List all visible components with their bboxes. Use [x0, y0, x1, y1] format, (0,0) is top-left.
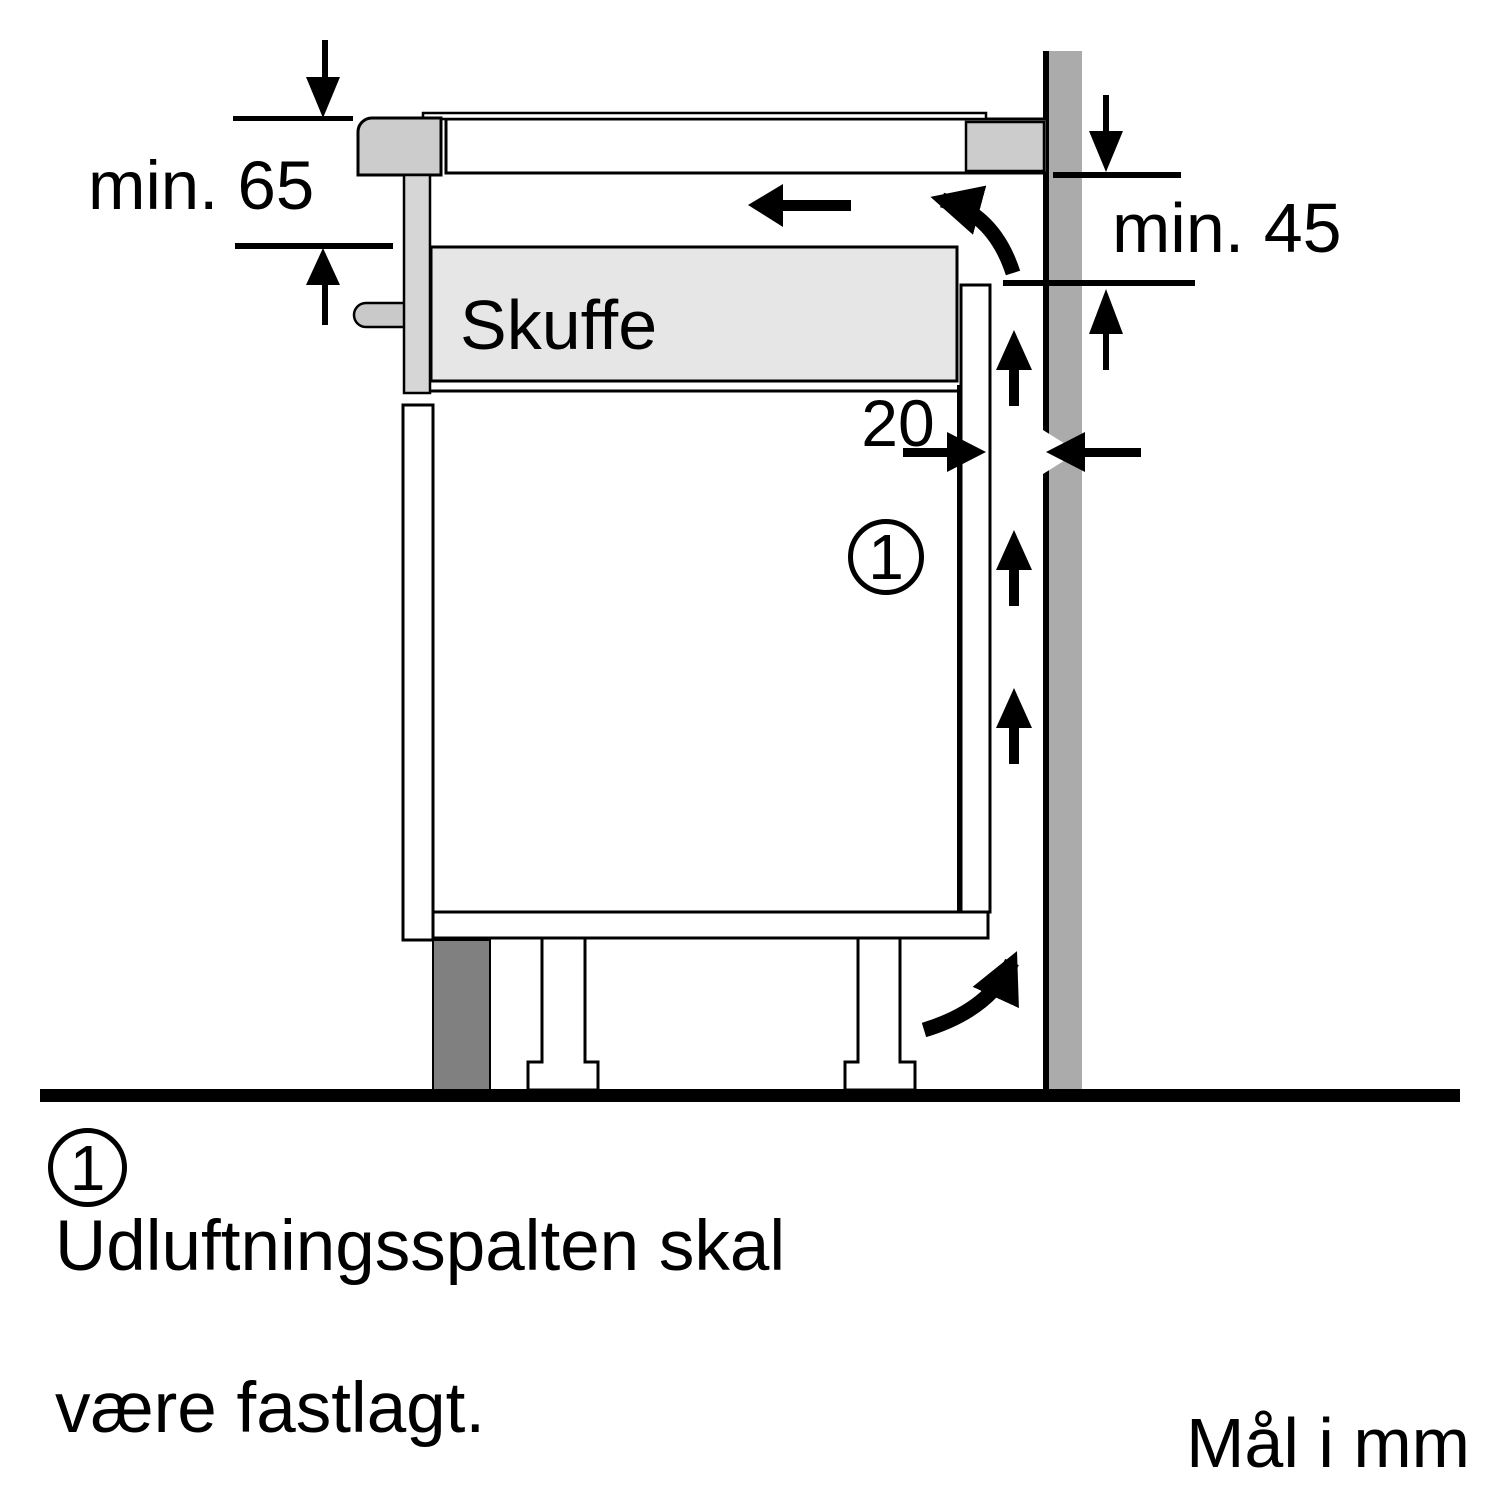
note-marker-number: 1: [70, 1131, 106, 1205]
airflow-up-arrow-icon: [1009, 726, 1019, 764]
installation-diagram: min. 65 min. 45 20 Skuffe 1 1 Udluftning…: [0, 0, 1500, 1500]
note-line2: være fastlagt.: [55, 1369, 485, 1448]
dimension-arrow-shaft: [322, 281, 328, 325]
wall-outline: [1043, 51, 1049, 1090]
fixing-peg: [354, 303, 406, 327]
dimension-tick: [1003, 280, 1195, 286]
dimension-arrow-shaft: [1103, 330, 1109, 370]
down-arrow-icon: [306, 77, 340, 118]
floor-line: [40, 1089, 1460, 1102]
dimension-tick: [1053, 172, 1181, 178]
plinth-block: [433, 940, 490, 1090]
airflow-up-arrowhead: [996, 530, 1032, 570]
note-line1: Udluftningsspalten skal: [55, 1207, 785, 1286]
callout-number: 1: [868, 520, 904, 594]
dimension-tick: [233, 116, 353, 121]
cabinet-side-panel: [404, 175, 430, 393]
dimension-arrow-shaft: [1083, 448, 1141, 457]
hob-glass-surface: [423, 113, 986, 119]
dimension-tick: [235, 243, 393, 249]
airflow-curve-bottom-icon: [924, 962, 1012, 1030]
up-arrow-icon: [306, 248, 340, 285]
worktop: [446, 119, 1047, 173]
dimension-label-min65: min. 65: [88, 151, 314, 220]
airflow-up-arrowhead: [996, 330, 1032, 370]
dimension-arrow-shaft: [1103, 95, 1109, 135]
dimension-arrow-shaft: [322, 40, 328, 80]
vent-back-panel: [961, 285, 990, 912]
units-label: Mål i mm: [1186, 1408, 1470, 1478]
cabinet-leg-front: [528, 938, 598, 1090]
airflow-up-arrow-icon: [1009, 368, 1019, 406]
note-marker-circle: 1: [48, 1128, 127, 1207]
airflow-left-arrow-icon: [783, 200, 851, 211]
hob-edge-profile: [358, 118, 441, 175]
up-arrow-icon: [1089, 289, 1123, 334]
airflow-left-arrowhead: [748, 184, 783, 227]
airflow-up-arrowhead: [996, 688, 1032, 728]
cabinet-bottom-panel: [431, 912, 988, 938]
cabinet-leg-rear: [845, 938, 915, 1090]
wall: [1049, 51, 1082, 1090]
note-text: Udluftningsspalten skal være fastlagt.: [55, 1206, 785, 1449]
drawer-label: Skuffe: [460, 290, 657, 360]
dimension-label-gap20: 20: [858, 390, 938, 456]
cabinet-side-column: [403, 405, 433, 940]
dimension-label-min45: min. 45: [1112, 193, 1342, 263]
dimension-gap20: [903, 432, 1141, 472]
hob-rear-profile: [966, 122, 1044, 171]
airflow-up-arrow-icon: [1009, 568, 1019, 606]
callout-1-marker: 1: [848, 519, 924, 595]
down-arrow-icon: [1089, 131, 1123, 172]
